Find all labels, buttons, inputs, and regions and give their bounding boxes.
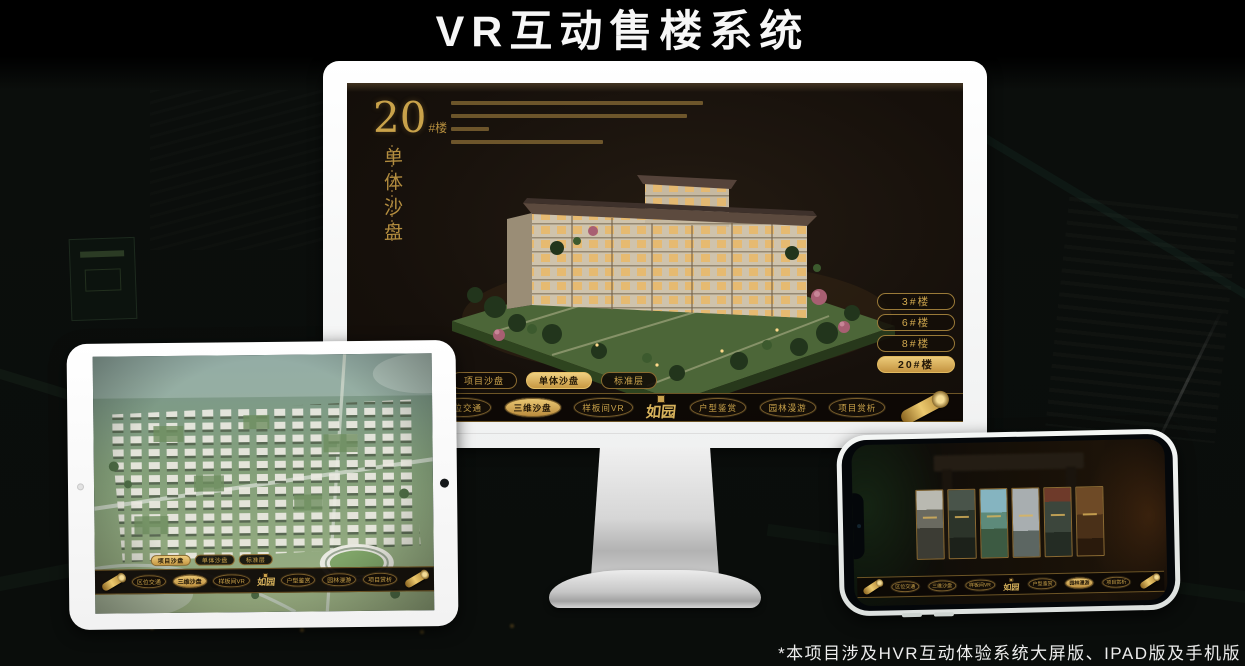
nav-item-garden-tour[interactable]: 园林漫游: [322, 573, 356, 586]
tab-standard-floor[interactable]: 标准层: [601, 372, 657, 389]
stage: VR互动售楼系统: [0, 0, 1245, 666]
phone-camera: [857, 524, 861, 528]
tab-single-sandtable[interactable]: 单体沙盘: [195, 554, 235, 565]
floor-button[interactable]: 6#楼: [877, 314, 955, 331]
scroll-icon[interactable]: [101, 573, 126, 592]
background-plaque: [69, 237, 138, 321]
building-number-suffix: #楼: [428, 121, 447, 135]
description-text-lines: [451, 101, 731, 153]
scene-panel[interactable]: [1075, 486, 1104, 557]
footnote: *本项目涉及HVR互动体验系统大屏版、IPAD版及手机版: [778, 639, 1241, 664]
phone-notch: [851, 493, 864, 559]
nav-item-garden-tour[interactable]: 园林漫游: [760, 398, 816, 417]
nav-item-showroom-vr[interactable]: 样板间VR: [965, 579, 995, 591]
tab-project-sandtable[interactable]: 项目沙盘: [151, 555, 191, 566]
floor-button[interactable]: 3#楼: [877, 293, 955, 310]
nav-item-project-review[interactable]: 项目赏析: [829, 398, 885, 417]
page-title: VR互动售楼系统: [436, 0, 810, 59]
phone-device: 区位交通 三维沙盘 样板间VR 如园 户型鉴赏 园林漫游 项目赏析: [836, 428, 1181, 616]
nav-item-project-review[interactable]: 项目赏析: [363, 573, 397, 586]
scene-panel[interactable]: [979, 488, 1008, 559]
tablet-home-button[interactable]: [440, 479, 449, 488]
scroll-icon[interactable]: [862, 579, 883, 596]
screen-heading: 20#楼 单体沙盘: [373, 97, 463, 251]
nav-item-showroom-vr[interactable]: 样板间VR: [574, 398, 632, 417]
nav-item-location[interactable]: 区位交通: [132, 575, 166, 588]
tab-project-sandtable[interactable]: 项目沙盘: [451, 372, 517, 389]
monitor-stand-base: [549, 570, 761, 608]
tablet-view-tabs: 项目沙盘 单体沙盘 标准层: [151, 554, 273, 566]
nav-item-unit-plans[interactable]: 户型鉴赏: [1028, 578, 1056, 590]
view-tabs: 项目沙盘 单体沙盘 标准层: [451, 372, 657, 389]
nav-item-location[interactable]: 区位交通: [891, 581, 919, 593]
scene-panel[interactable]: [1043, 487, 1072, 558]
floor-selector: 3#楼 6#楼 8#楼 20#楼: [877, 293, 955, 373]
tab-standard-floor[interactable]: 标准层: [239, 554, 273, 565]
scroll-icon[interactable]: [1139, 573, 1160, 590]
nav-item-sandtable[interactable]: 三维沙盘: [173, 575, 207, 588]
nav-item-unit-plans[interactable]: 户型鉴赏: [690, 398, 746, 417]
scene-panel[interactable]: [1011, 487, 1040, 558]
scene-panel[interactable]: [947, 489, 976, 560]
nav-item-unit-plans[interactable]: 户型鉴赏: [281, 573, 315, 586]
tablet-navbar: 区位交通 三维沙盘 样板间VR 如园 户型鉴赏 园林漫游 项目赏析: [95, 566, 434, 595]
brand-logo: 如园: [257, 573, 275, 588]
nav-item-project-review[interactable]: 项目赏析: [1102, 576, 1130, 588]
tablet-screen: 项目沙盘 单体沙盘 标准层 区位交通 三维沙盘 样板间VR 如园 户型鉴赏 园林…: [93, 353, 435, 614]
phone-volume-button[interactable]: [934, 612, 954, 616]
tablet-camera: [77, 483, 84, 490]
brand-logo: 如园: [1004, 578, 1020, 591]
scroll-icon[interactable]: [899, 390, 950, 422]
scene-gate: [933, 452, 1083, 471]
nav-item-showroom-vr[interactable]: 样板间VR: [213, 574, 249, 587]
floor-button-active[interactable]: 20#楼: [877, 356, 955, 373]
building-number: 20: [373, 93, 426, 142]
title-bar: VR互动售楼系统: [0, 0, 1245, 56]
phone-screen: 区位交通 三维沙盘 样板间VR 如园 户型鉴赏 园林漫游 项目赏析: [851, 439, 1167, 607]
tab-single-sandtable[interactable]: 单体沙盘: [526, 372, 592, 389]
nav-item-sandtable[interactable]: 三维沙盘: [928, 580, 956, 592]
monitor-stand-neck: [591, 447, 719, 577]
seal-icon: [657, 395, 665, 403]
tablet-device: 项目沙盘 单体沙盘 标准层 区位交通 三维沙盘 样板间VR 如园 户型鉴赏 园林…: [67, 340, 459, 630]
floor-button[interactable]: 8#楼: [877, 335, 955, 352]
scroll-icon[interactable]: [404, 569, 429, 588]
scene-gallery: [915, 486, 1104, 560]
nav-item-sandtable[interactable]: 三维沙盘: [505, 398, 561, 417]
phone-volume-button[interactable]: [902, 613, 922, 617]
background-buildings: [1045, 197, 1238, 444]
heading-vertical-subtext: [391, 145, 393, 241]
brand-logo: 如园: [646, 395, 676, 420]
scene-panel[interactable]: [915, 489, 944, 560]
nav-item-garden-tour[interactable]: 园林漫游: [1065, 577, 1093, 589]
